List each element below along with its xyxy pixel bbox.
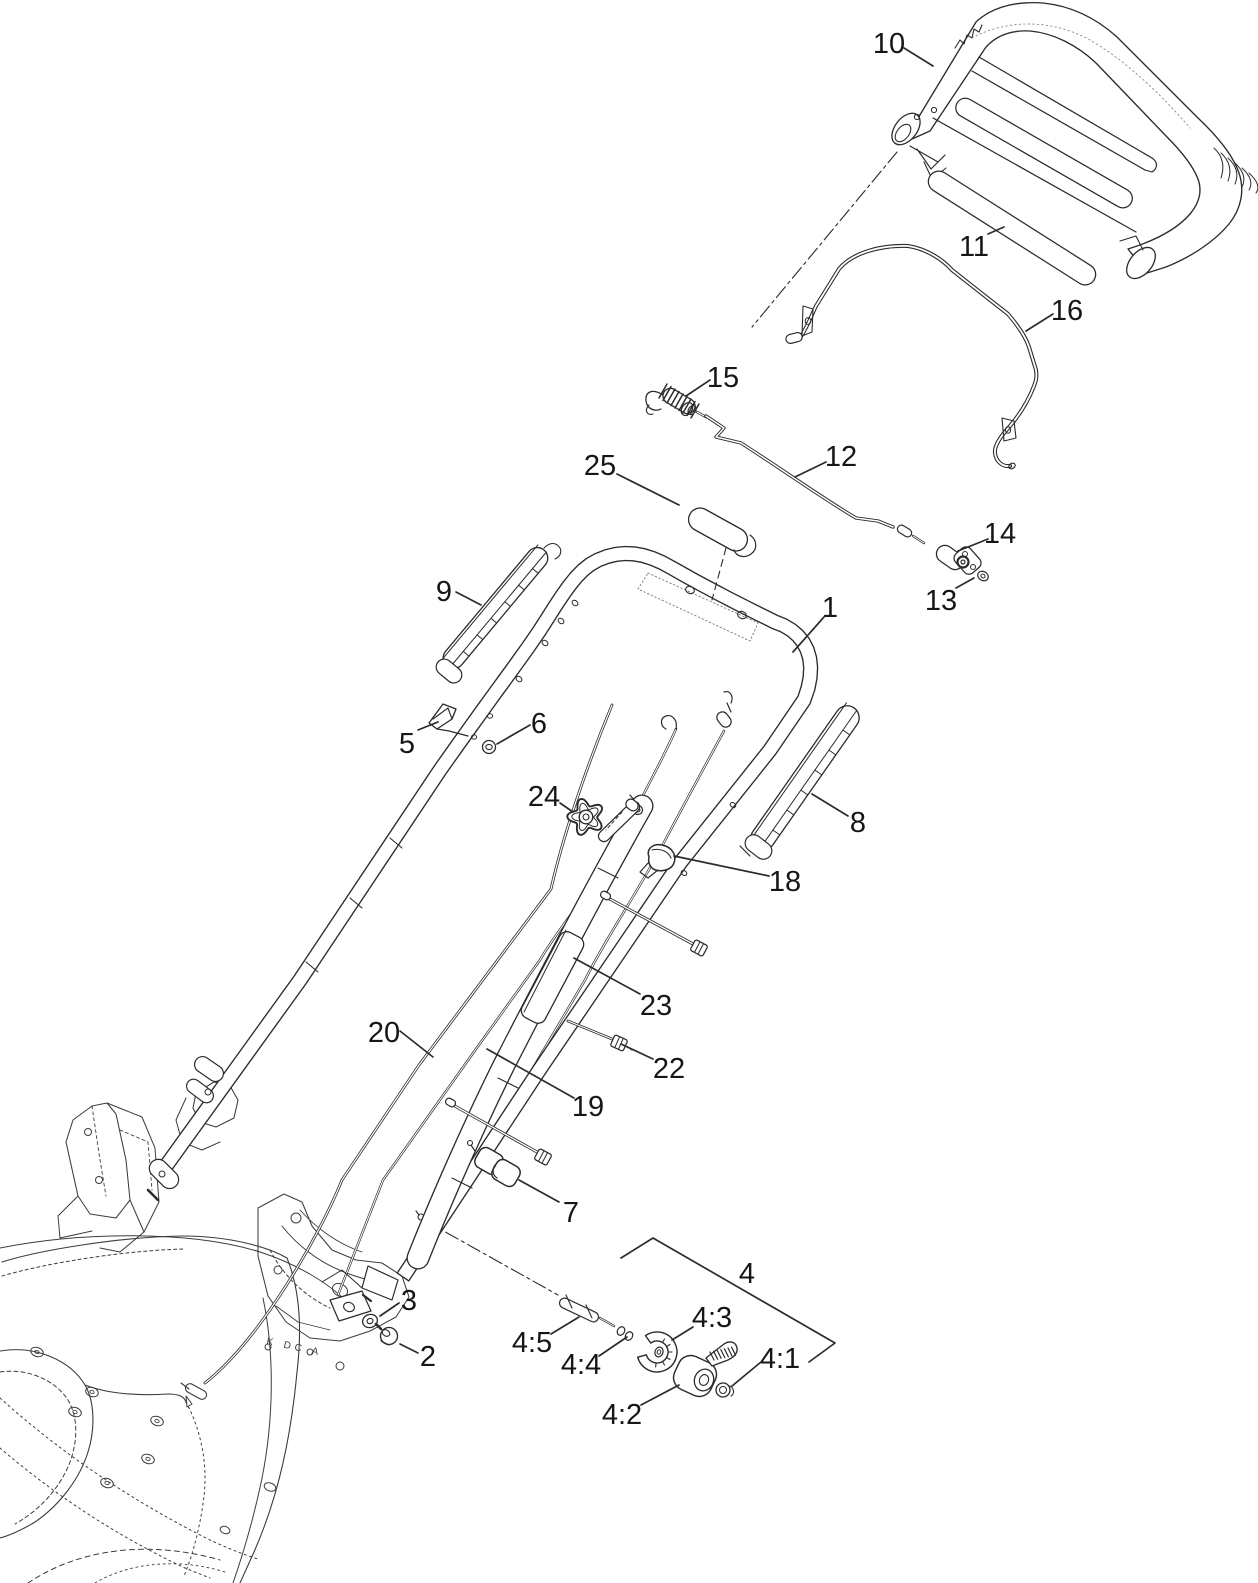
svg-text:4:2: 4:2 xyxy=(602,1399,642,1431)
svg-text:10: 10 xyxy=(873,28,905,60)
svg-text:15: 15 xyxy=(707,362,739,394)
svg-text:12: 12 xyxy=(825,441,857,473)
svg-text:16: 16 xyxy=(1051,295,1083,327)
svg-text:24: 24 xyxy=(528,781,560,813)
svg-text:7: 7 xyxy=(563,1197,579,1229)
svg-text:5: 5 xyxy=(399,728,415,760)
svg-text:4:4: 4:4 xyxy=(561,1349,601,1381)
svg-text:14: 14 xyxy=(984,518,1016,550)
svg-text:13: 13 xyxy=(925,585,957,617)
svg-text:25: 25 xyxy=(584,450,616,482)
svg-text:4: 4 xyxy=(739,1258,755,1290)
svg-text:18: 18 xyxy=(769,866,801,898)
svg-text:8: 8 xyxy=(850,807,866,839)
svg-text:4:5: 4:5 xyxy=(512,1327,552,1359)
svg-text:22: 22 xyxy=(653,1053,685,1085)
svg-text:11: 11 xyxy=(959,231,989,263)
svg-text:20: 20 xyxy=(368,1017,400,1049)
svg-text:23: 23 xyxy=(640,990,672,1022)
svg-text:3: 3 xyxy=(401,1285,417,1317)
svg-text:1: 1 xyxy=(822,592,838,624)
svg-text:6: 6 xyxy=(531,708,547,740)
svg-text:19: 19 xyxy=(572,1091,604,1123)
svg-text:9: 9 xyxy=(436,576,452,608)
svg-text:2: 2 xyxy=(420,1341,436,1373)
svg-text:4:3: 4:3 xyxy=(692,1302,732,1334)
svg-text:4:1: 4:1 xyxy=(760,1343,800,1375)
